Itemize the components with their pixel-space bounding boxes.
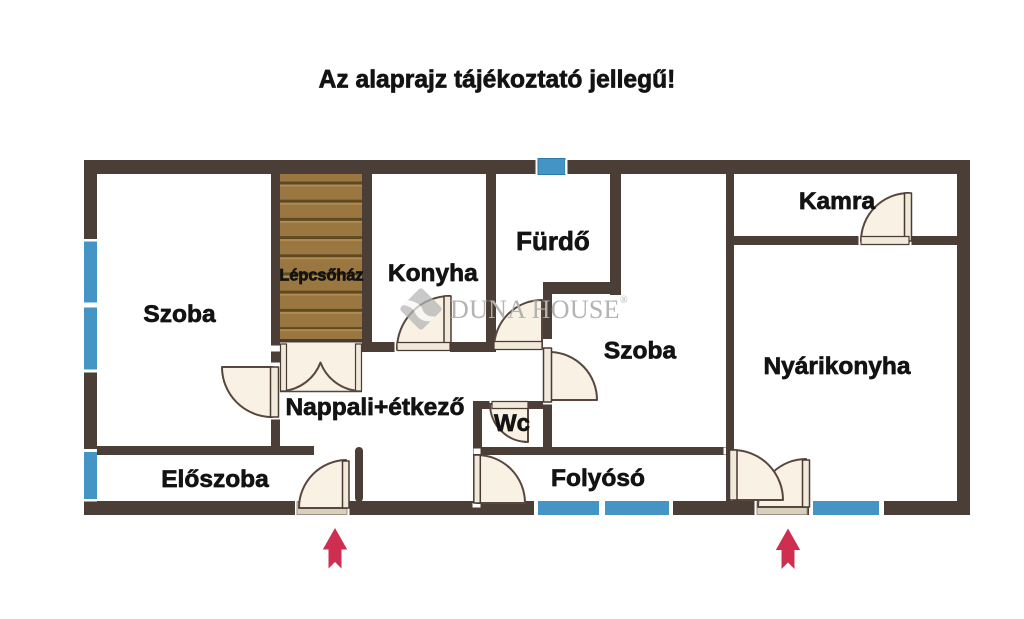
svg-text:®: ® — [620, 295, 628, 306]
svg-text:Az alaprajz tájékoztató jelleg: Az alaprajz tájékoztató jellegű! — [319, 67, 676, 94]
svg-text:Lépcsőház: Lépcsőház — [279, 267, 363, 285]
svg-text:DUNA HOUSE: DUNA HOUSE — [450, 295, 620, 324]
svg-text:Szoba: Szoba — [143, 301, 216, 328]
svg-text:Konyha: Konyha — [388, 260, 478, 287]
svg-text:Folyósó: Folyósó — [551, 465, 645, 492]
svg-text:Nyárikonyha: Nyárikonyha — [763, 353, 910, 380]
svg-text:Nappali+étkező: Nappali+étkező — [285, 394, 464, 421]
svg-text:Szoba: Szoba — [604, 338, 677, 365]
svg-text:Wc: Wc — [494, 410, 530, 437]
svg-text:Előszoba: Előszoba — [161, 466, 269, 493]
svg-text:Kamra: Kamra — [799, 188, 876, 215]
svg-text:Fürdő: Fürdő — [516, 226, 590, 256]
